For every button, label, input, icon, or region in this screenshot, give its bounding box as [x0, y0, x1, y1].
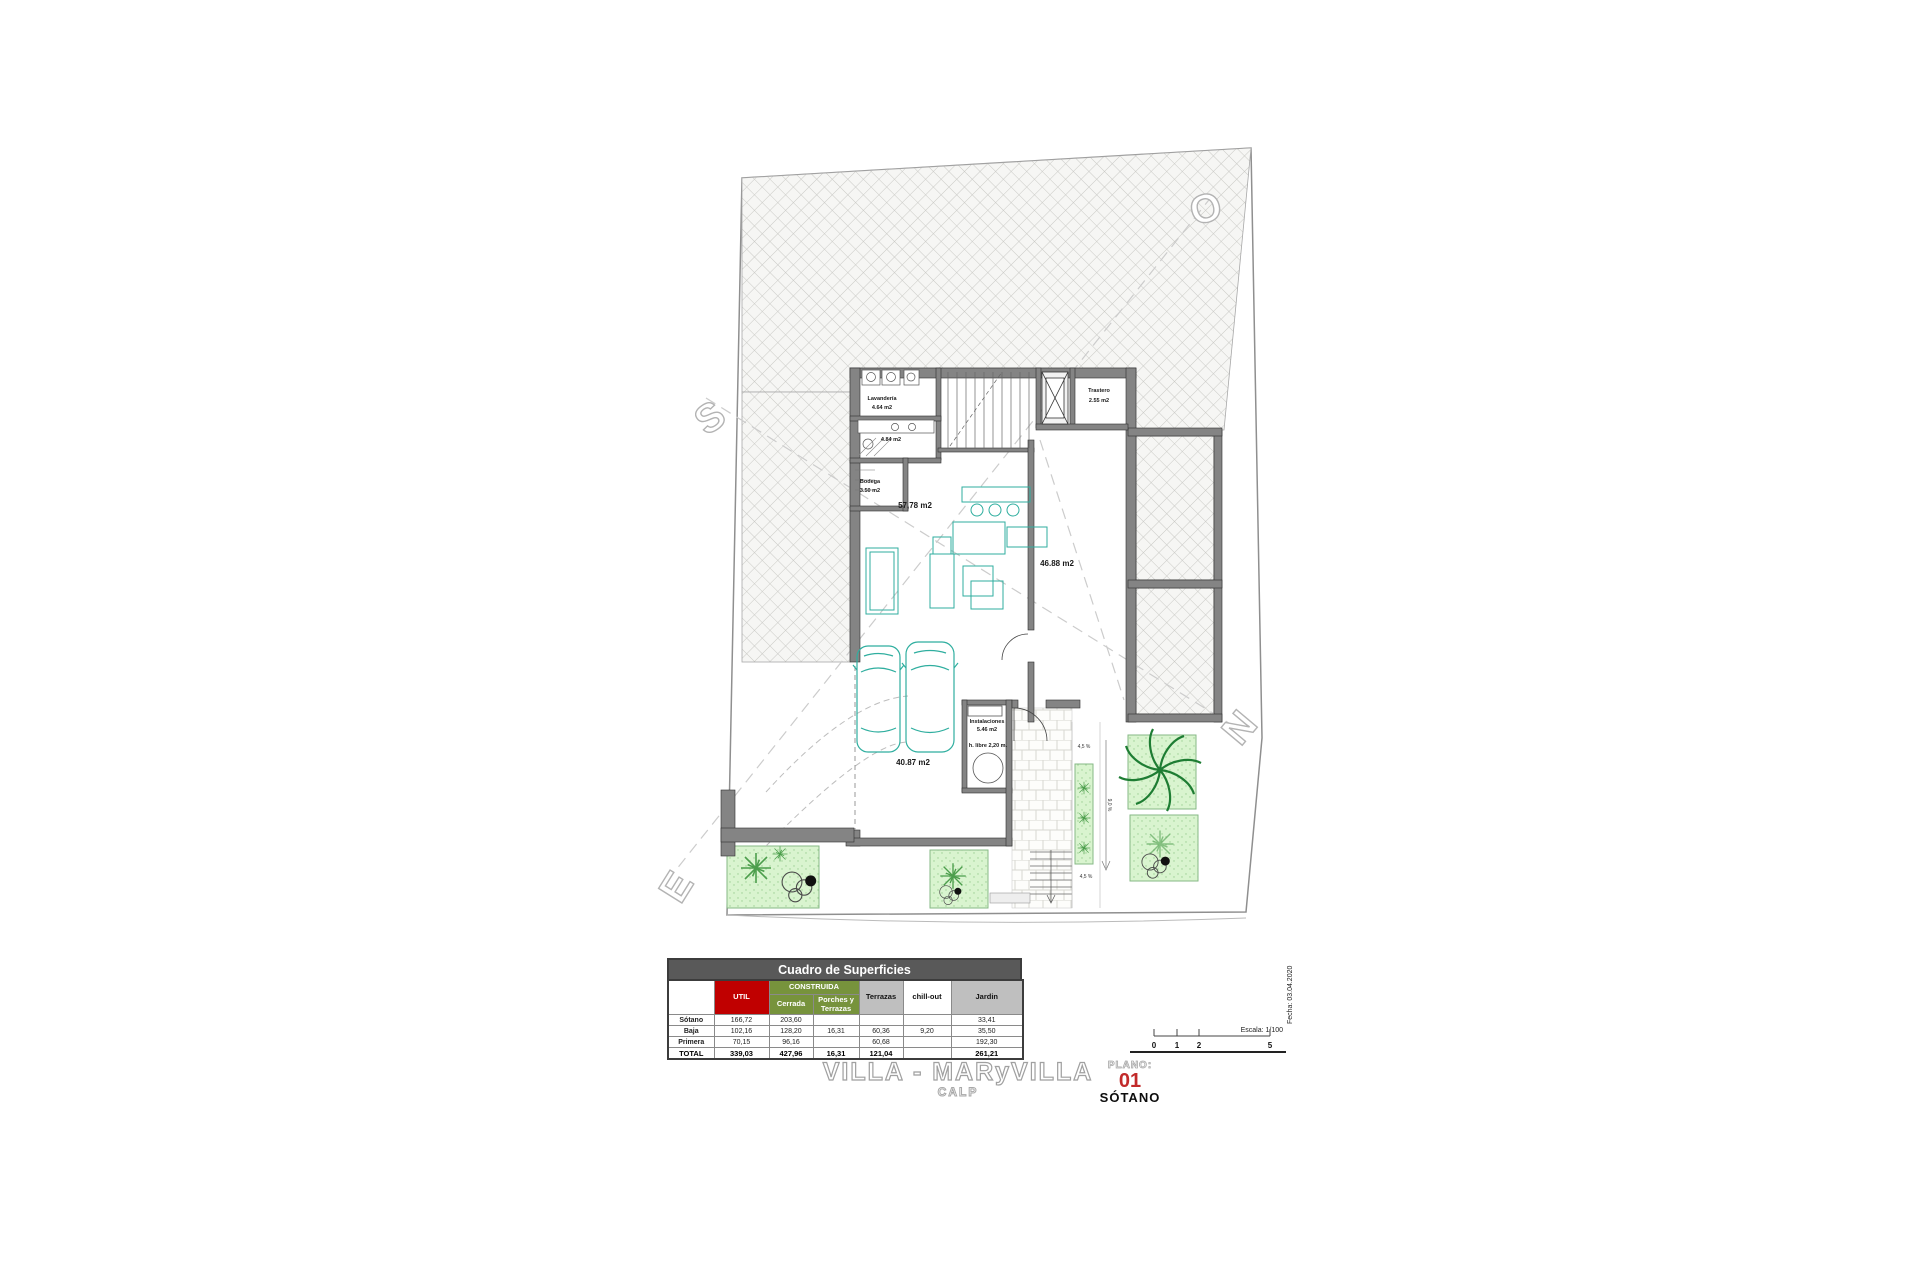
- row-label: Baja: [668, 1026, 714, 1037]
- compass-letter-este: E: [651, 864, 702, 910]
- cell: 60,36: [859, 1026, 903, 1037]
- cell: 96,16: [769, 1037, 813, 1048]
- cell: 102,16: [714, 1026, 769, 1037]
- cell: [903, 1037, 951, 1048]
- cell: 33,41: [951, 1015, 1023, 1026]
- street-edge: [727, 915, 1246, 922]
- fecha-text: Fecha: 03.04.2020: [1287, 966, 1294, 1024]
- header-construida: CONSTRUIDA: [769, 980, 859, 995]
- tiled-path: [1012, 708, 1072, 908]
- cell: 9,20: [903, 1026, 951, 1037]
- scale-bar: 0 1 2 5 Escala: 1/100 Fecha: 03.04.2020: [1130, 966, 1294, 1052]
- cell: 35,50: [951, 1026, 1023, 1037]
- compass-letter-sur: S: [687, 392, 734, 443]
- cell: 70,15: [714, 1037, 769, 1048]
- label-trastero: Trastero: [1088, 388, 1110, 394]
- escala-text: Escala: 1/100: [1241, 1027, 1284, 1034]
- label-salon-area: 57,78 m2: [898, 501, 932, 510]
- surfaces-table: Cuadro de Superficies UTIL CONSTRUIDA Te…: [667, 958, 1022, 1060]
- label-bano-area: 4.84 m2: [881, 437, 901, 443]
- cell: [813, 1015, 859, 1026]
- header-terrazas: Terrazas: [859, 980, 903, 1015]
- cell: [903, 1015, 951, 1026]
- cell: 60,68: [859, 1037, 903, 1048]
- label-instalaciones-area: 5.46 m2: [977, 727, 997, 733]
- elevator: [1042, 372, 1068, 424]
- surfaces-table-title: Cuadro de Superficies: [667, 958, 1022, 979]
- row-label: TOTAL: [668, 1048, 714, 1060]
- label-instalaciones: Instalaciones: [970, 719, 1005, 725]
- label-este-area: 46.88 m2: [1040, 559, 1074, 568]
- row-label: Primera: [668, 1037, 714, 1048]
- label-rampa-inf: 4,5 %: [1080, 874, 1093, 880]
- cell: 128,20: [769, 1026, 813, 1037]
- header-jardin: Jardin: [951, 980, 1023, 1015]
- cell: 203,60: [769, 1015, 813, 1026]
- table-row-sotano: Sótano 166,72 203,60 33,41: [668, 1015, 1023, 1026]
- header-empty: [668, 980, 714, 1015]
- scale-tick-2: 2: [1197, 1041, 1202, 1050]
- laundry-machines: [862, 370, 919, 385]
- label-altura-libre: h. libre 2,20 m.: [969, 743, 1008, 749]
- label-garaje-area: 40.87 m2: [896, 758, 930, 767]
- header-porches: Porches y Terrazas: [813, 995, 859, 1015]
- terrain-hatch-left: [742, 392, 850, 662]
- label-bodega-area: 3.50 m2: [860, 488, 880, 494]
- label-lavanderia-area: 4.64 m2: [872, 405, 892, 411]
- row-label: Sótano: [668, 1015, 714, 1026]
- label-bodega: Bodega: [860, 479, 881, 485]
- cell: [813, 1037, 859, 1048]
- label-rampa-lateral: 9,0 %: [1106, 799, 1112, 812]
- label-lavanderia: Lavandería: [867, 396, 897, 402]
- cell: 192,30: [951, 1037, 1023, 1048]
- label-trastero-area: 2.55 m2: [1089, 398, 1109, 404]
- cell: 16,31: [813, 1026, 859, 1037]
- cell: [859, 1015, 903, 1026]
- patio-hatch-1: [1136, 436, 1214, 580]
- table-row-primera: Primera 70,15 96,16 60,68 192,30: [668, 1037, 1023, 1048]
- drawing-sheet: S O N E Lavandería 4.64 m2 4.84 m2 Trast…: [0, 0, 1920, 1280]
- header-chill-out: chill-out: [903, 980, 951, 1015]
- scale-tick-1: 1: [1175, 1041, 1180, 1050]
- scale-tick-0: 0: [1152, 1041, 1157, 1050]
- plano-name: SÓTANO: [1080, 1090, 1180, 1105]
- label-rampa-sup: 4,5 %: [1078, 744, 1091, 750]
- patio-hatch-2: [1136, 588, 1214, 714]
- cell: 166,72: [714, 1015, 769, 1026]
- table-row-baja: Baja 102,16 128,20 16,31 60,36 9,20 35,5…: [668, 1026, 1023, 1037]
- header-cerrada: Cerrada: [769, 995, 813, 1015]
- scale-tick-5: 5: [1268, 1041, 1273, 1050]
- header-util: UTIL: [714, 980, 769, 1015]
